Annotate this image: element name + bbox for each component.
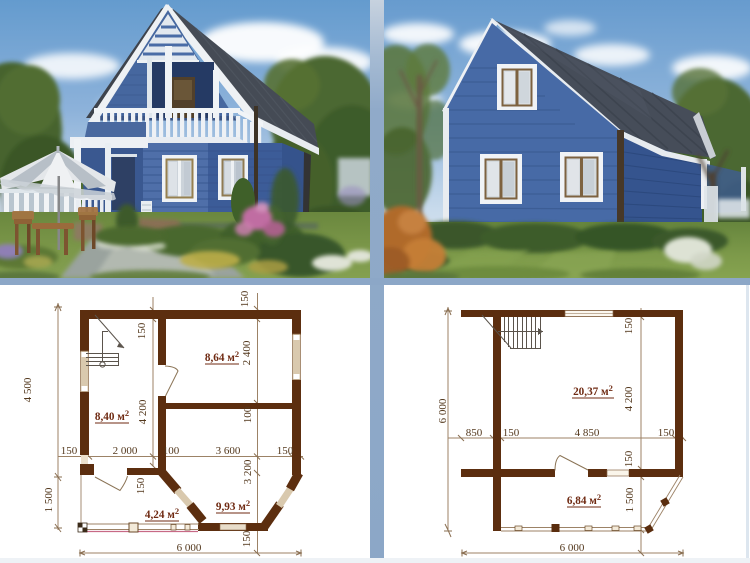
svg-text:150: 150 [623,450,635,467]
svg-text:6 000: 6 000 [560,542,585,554]
svg-text:850: 850 [466,427,483,439]
svg-text:4 200: 4 200 [623,386,635,411]
svg-text:100: 100 [242,406,254,423]
svg-text:150: 150 [623,317,635,334]
svg-text:150: 150 [239,290,251,307]
svg-text:8,64 м2: 8,64 м2 [205,349,239,364]
svg-text:150: 150 [503,427,520,439]
svg-text:100: 100 [163,445,180,457]
svg-text:6 000: 6 000 [177,542,202,554]
svg-text:4 500: 4 500 [22,377,34,402]
svg-text:4 850: 4 850 [575,427,600,439]
svg-text:150: 150 [135,477,147,494]
svg-text:150: 150 [658,427,675,439]
svg-text:150: 150 [136,322,148,339]
svg-text:9,93 м2: 9,93 м2 [216,498,250,513]
svg-text:150: 150 [61,445,78,457]
svg-text:1 500: 1 500 [624,487,636,512]
svg-text:2 400: 2 400 [241,340,253,365]
svg-text:4 200: 4 200 [137,399,149,424]
svg-text:20,37 м2: 20,37 м2 [573,383,613,398]
svg-text:6 000: 6 000 [437,398,449,423]
svg-text:150: 150 [241,530,253,547]
svg-text:4,24 м2: 4,24 м2 [145,506,179,521]
svg-text:150: 150 [277,445,294,457]
svg-text:3 200: 3 200 [242,459,254,484]
svg-text:1 500: 1 500 [43,487,55,512]
svg-text:2 000: 2 000 [113,445,138,457]
svg-text:6,84 м2: 6,84 м2 [567,492,601,507]
svg-text:8,40 м2: 8,40 м2 [95,408,129,423]
svg-text:3 600: 3 600 [216,445,241,457]
